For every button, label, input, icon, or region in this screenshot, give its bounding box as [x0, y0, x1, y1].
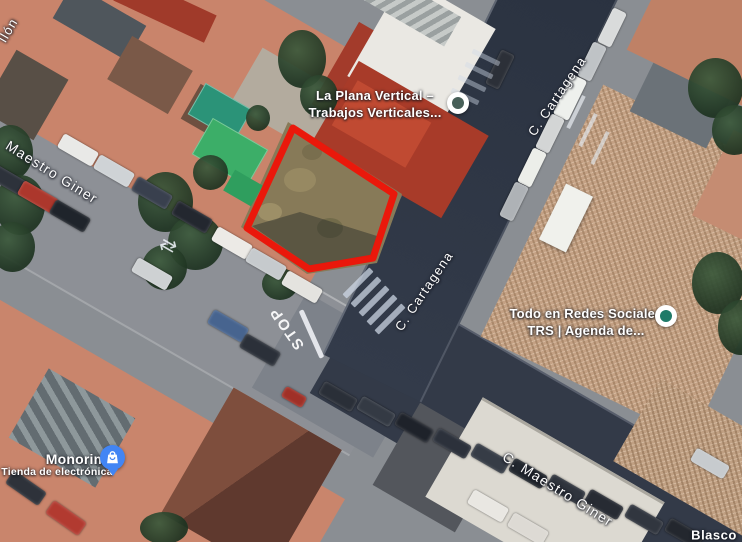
car	[49, 199, 92, 233]
car	[207, 309, 250, 343]
roof-red-top-left	[113, 0, 216, 43]
car	[485, 49, 515, 90]
green-tarp	[192, 118, 268, 186]
roof-slate-patch	[53, 0, 147, 61]
roof-slate-top-right	[630, 56, 734, 149]
roof-brown-hip	[161, 387, 342, 542]
crosswalk-stripe	[342, 267, 373, 298]
roof-tiled-right	[481, 85, 742, 440]
crosswalk-stripe	[358, 285, 389, 316]
motorbike-row	[566, 95, 585, 129]
car	[131, 176, 174, 210]
tree	[246, 105, 270, 131]
tree	[0, 222, 35, 272]
tree	[688, 58, 742, 118]
motorbike-row	[590, 131, 609, 165]
motorbike-row	[578, 113, 597, 147]
dirt-patch	[317, 218, 343, 238]
plot-dirt	[241, 122, 402, 274]
tree	[0, 175, 45, 235]
car	[624, 504, 664, 536]
crosswalk-stripe	[366, 294, 397, 325]
tree	[142, 245, 187, 290]
poi-la-plana-line1[interactable]: La Plana Vertical –	[308, 88, 441, 103]
two-way-arrow-marking: ⇄	[156, 233, 181, 259]
plot-shadow	[252, 212, 377, 266]
poi-todo-redes-line2[interactable]: TRS | Agenda de...	[510, 323, 663, 338]
place-circle-icon[interactable]	[655, 305, 677, 327]
tree	[692, 252, 742, 314]
tree	[138, 172, 193, 232]
car	[507, 512, 550, 542]
roof-terracotta-top-left	[0, 0, 421, 290]
car	[432, 428, 472, 460]
car	[245, 247, 288, 281]
crosswalk-stripe	[464, 62, 493, 80]
car	[467, 489, 510, 523]
car	[517, 147, 547, 188]
stop-line-marking	[299, 309, 325, 359]
poi-la-plana-line2[interactable]: Trabajos Verticales...	[308, 105, 441, 120]
poi-monorim-subtitle[interactable]: Tienda de electrónica	[1, 466, 112, 478]
car	[690, 448, 730, 480]
place-circle-icon-dot	[660, 310, 672, 322]
poi-todo-redes-line1[interactable]: Todo en Redes Sociales	[510, 306, 663, 321]
building-gray-mid	[373, 403, 503, 533]
poi-monorim-name[interactable]: Monorim	[46, 451, 107, 467]
courtyard-dark	[107, 36, 193, 114]
tree	[262, 268, 298, 300]
street-label-cartagena-upper: C. Cartagena	[525, 53, 589, 138]
car	[239, 333, 282, 367]
tree	[718, 300, 742, 355]
place-circle-icon-dot	[452, 97, 464, 109]
street-label-blasco-partial: Blasco	[691, 528, 737, 542]
poi-todo-redes[interactable]: Todo en Redes Sociales TRS | Agenda de..…	[510, 306, 663, 338]
roof-terracotta-top-right	[627, 0, 742, 107]
skylight-strip	[362, 0, 461, 46]
car	[394, 412, 434, 444]
car	[93, 154, 136, 188]
building-white-bottom	[425, 397, 664, 542]
tree	[168, 215, 223, 270]
car	[57, 133, 100, 167]
street-maestro-giner	[0, 94, 414, 457]
satellite-map[interactable]: STOP ⇄ llón Maestro Giner C. Cartagena C…	[0, 0, 742, 542]
car	[45, 500, 87, 536]
roof-red-la-plana	[311, 61, 488, 218]
car	[171, 200, 214, 234]
car	[499, 181, 529, 222]
car	[597, 7, 627, 48]
dirt-patch	[258, 203, 282, 221]
tree	[712, 105, 742, 155]
street-label-maestro-giner: Maestro Giner	[3, 137, 101, 207]
street-label-cartagena-lower: C. Cartagena	[392, 248, 456, 333]
car	[211, 226, 254, 260]
green-tarp	[188, 83, 253, 141]
car	[281, 270, 324, 304]
crosswalk-stripe	[457, 75, 486, 93]
car	[17, 180, 60, 214]
rooftop-white-structure	[539, 184, 593, 253]
street-label-maestro-giner-lower: C. Maestro Giner	[500, 448, 617, 529]
dirt-patch	[284, 168, 316, 192]
roof-terracotta-bottom-left	[0, 219, 345, 542]
roof-terracotta-right-mid	[692, 130, 742, 239]
car	[0, 163, 29, 197]
tree	[193, 155, 228, 190]
tree	[278, 30, 326, 88]
poi-la-plana[interactable]: La Plana Vertical – Trabajos Verticales.…	[308, 88, 441, 120]
crosswalk-stripe	[471, 49, 500, 67]
car	[356, 396, 396, 428]
roof-dark-patch	[0, 50, 68, 141]
dirt-patch	[302, 144, 322, 160]
tree	[140, 512, 188, 542]
car	[318, 381, 358, 413]
car	[281, 386, 308, 408]
plot-outline-polygon	[247, 128, 394, 269]
green-tarp	[223, 170, 263, 207]
shopping-bag-icon[interactable]	[100, 445, 125, 470]
roof-tiled-bottom-right	[613, 379, 742, 536]
street-label-partial: llón	[0, 15, 21, 45]
car	[131, 257, 174, 291]
crosswalk-stripe	[350, 276, 381, 307]
courtyard-dark	[181, 84, 249, 146]
stop-road-marking: STOP	[266, 303, 308, 353]
place-circle-icon[interactable]	[447, 92, 469, 114]
